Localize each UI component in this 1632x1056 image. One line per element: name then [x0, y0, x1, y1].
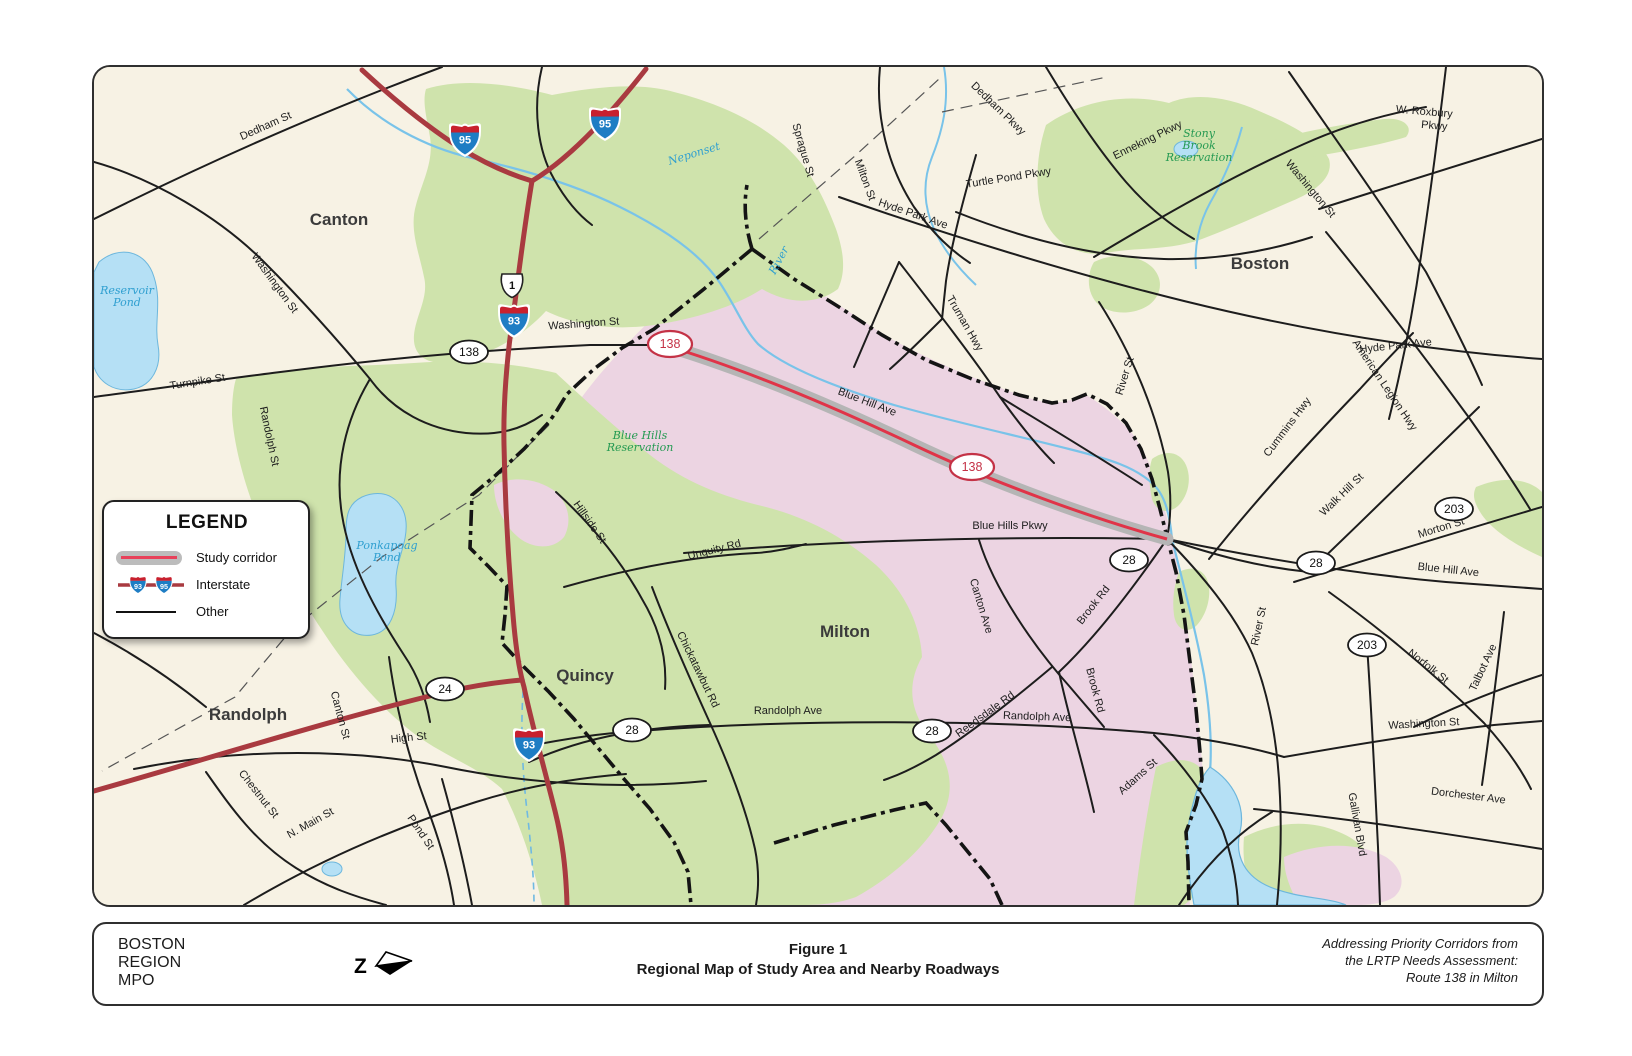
footer-panel: BOSTON REGION MPO Z Figure 1 Regional Ma…: [92, 922, 1544, 1006]
town-label: Milton: [820, 622, 870, 641]
svg-text:203: 203: [1444, 502, 1464, 516]
svg-text:28: 28: [925, 724, 939, 738]
svg-text:93: 93: [134, 582, 142, 590]
route-shield-28: 28: [613, 719, 651, 742]
svg-text:24: 24: [438, 682, 452, 696]
street-label: Randolph Ave: [754, 705, 822, 717]
street-label: Blue Hills Pkwy: [972, 520, 1048, 532]
svg-text:93: 93: [508, 316, 520, 328]
route-shield-24: 24: [426, 678, 464, 701]
svg-text:93: 93: [523, 740, 535, 752]
route-shield-138: 138: [450, 341, 488, 364]
credit-line: Route 138 in Milton: [1322, 970, 1518, 987]
park-label: Blue HillsReservation: [606, 429, 674, 454]
credit-line: the LRTP Needs Assessment:: [1322, 953, 1518, 970]
svg-text:203: 203: [1357, 638, 1377, 652]
town-label: Boston: [1231, 254, 1290, 273]
svg-text:95: 95: [160, 582, 168, 590]
interstate-swatch-icon: 93 95: [116, 574, 186, 596]
svg-text:28: 28: [1122, 553, 1136, 567]
study-corridor-swatch: [116, 551, 188, 565]
svg-text:28: 28: [1309, 556, 1323, 570]
route-shield-28: 28: [1110, 549, 1148, 572]
svg-text:138: 138: [660, 337, 681, 351]
legend-title: LEGEND: [116, 512, 298, 534]
legend-panel: LEGEND Study corridor 93 95 Interstate O…: [102, 500, 310, 639]
legend-label: Study corridor: [188, 550, 277, 565]
legend-label: Interstate: [188, 577, 250, 592]
route-shield-28: 28: [1297, 552, 1335, 575]
street-label: Randolph Ave: [1003, 710, 1072, 724]
svg-text:95: 95: [459, 135, 471, 147]
town-label: Quincy: [556, 666, 614, 685]
route-shield-203: 203: [1348, 634, 1386, 657]
other-road-swatch: [116, 611, 188, 613]
legend-item-study-corridor: Study corridor: [116, 544, 298, 571]
route-shield-203: 203: [1435, 498, 1473, 521]
route-shield-28: 28: [913, 720, 951, 743]
interstate-swatch: 93 95: [116, 574, 188, 596]
svg-text:28: 28: [625, 723, 639, 737]
svg-text:138: 138: [459, 345, 479, 359]
legend-item-interstate: 93 95 Interstate: [116, 571, 298, 598]
map-canvas: Dedham StWashington StTurnpike StRandolp…: [94, 67, 1542, 905]
svg-text:138: 138: [962, 460, 983, 474]
town-label: Randolph: [209, 705, 287, 724]
svg-text:95: 95: [599, 119, 611, 131]
legend-item-other: Other: [116, 598, 298, 625]
svg-text:1: 1: [509, 280, 515, 292]
street-label: Pkwy: [1421, 119, 1449, 133]
route-shield-138: 138: [950, 454, 994, 480]
route-shield-138: 138: [648, 331, 692, 357]
figure-credit: Addressing Priority Corridors from the L…: [1322, 936, 1518, 987]
map-panel: Dedham StWashington StTurnpike StRandolp…: [92, 65, 1544, 907]
credit-line: Addressing Priority Corridors from: [1322, 936, 1518, 953]
legend-label: Other: [188, 604, 229, 619]
town-label: Canton: [310, 210, 369, 229]
